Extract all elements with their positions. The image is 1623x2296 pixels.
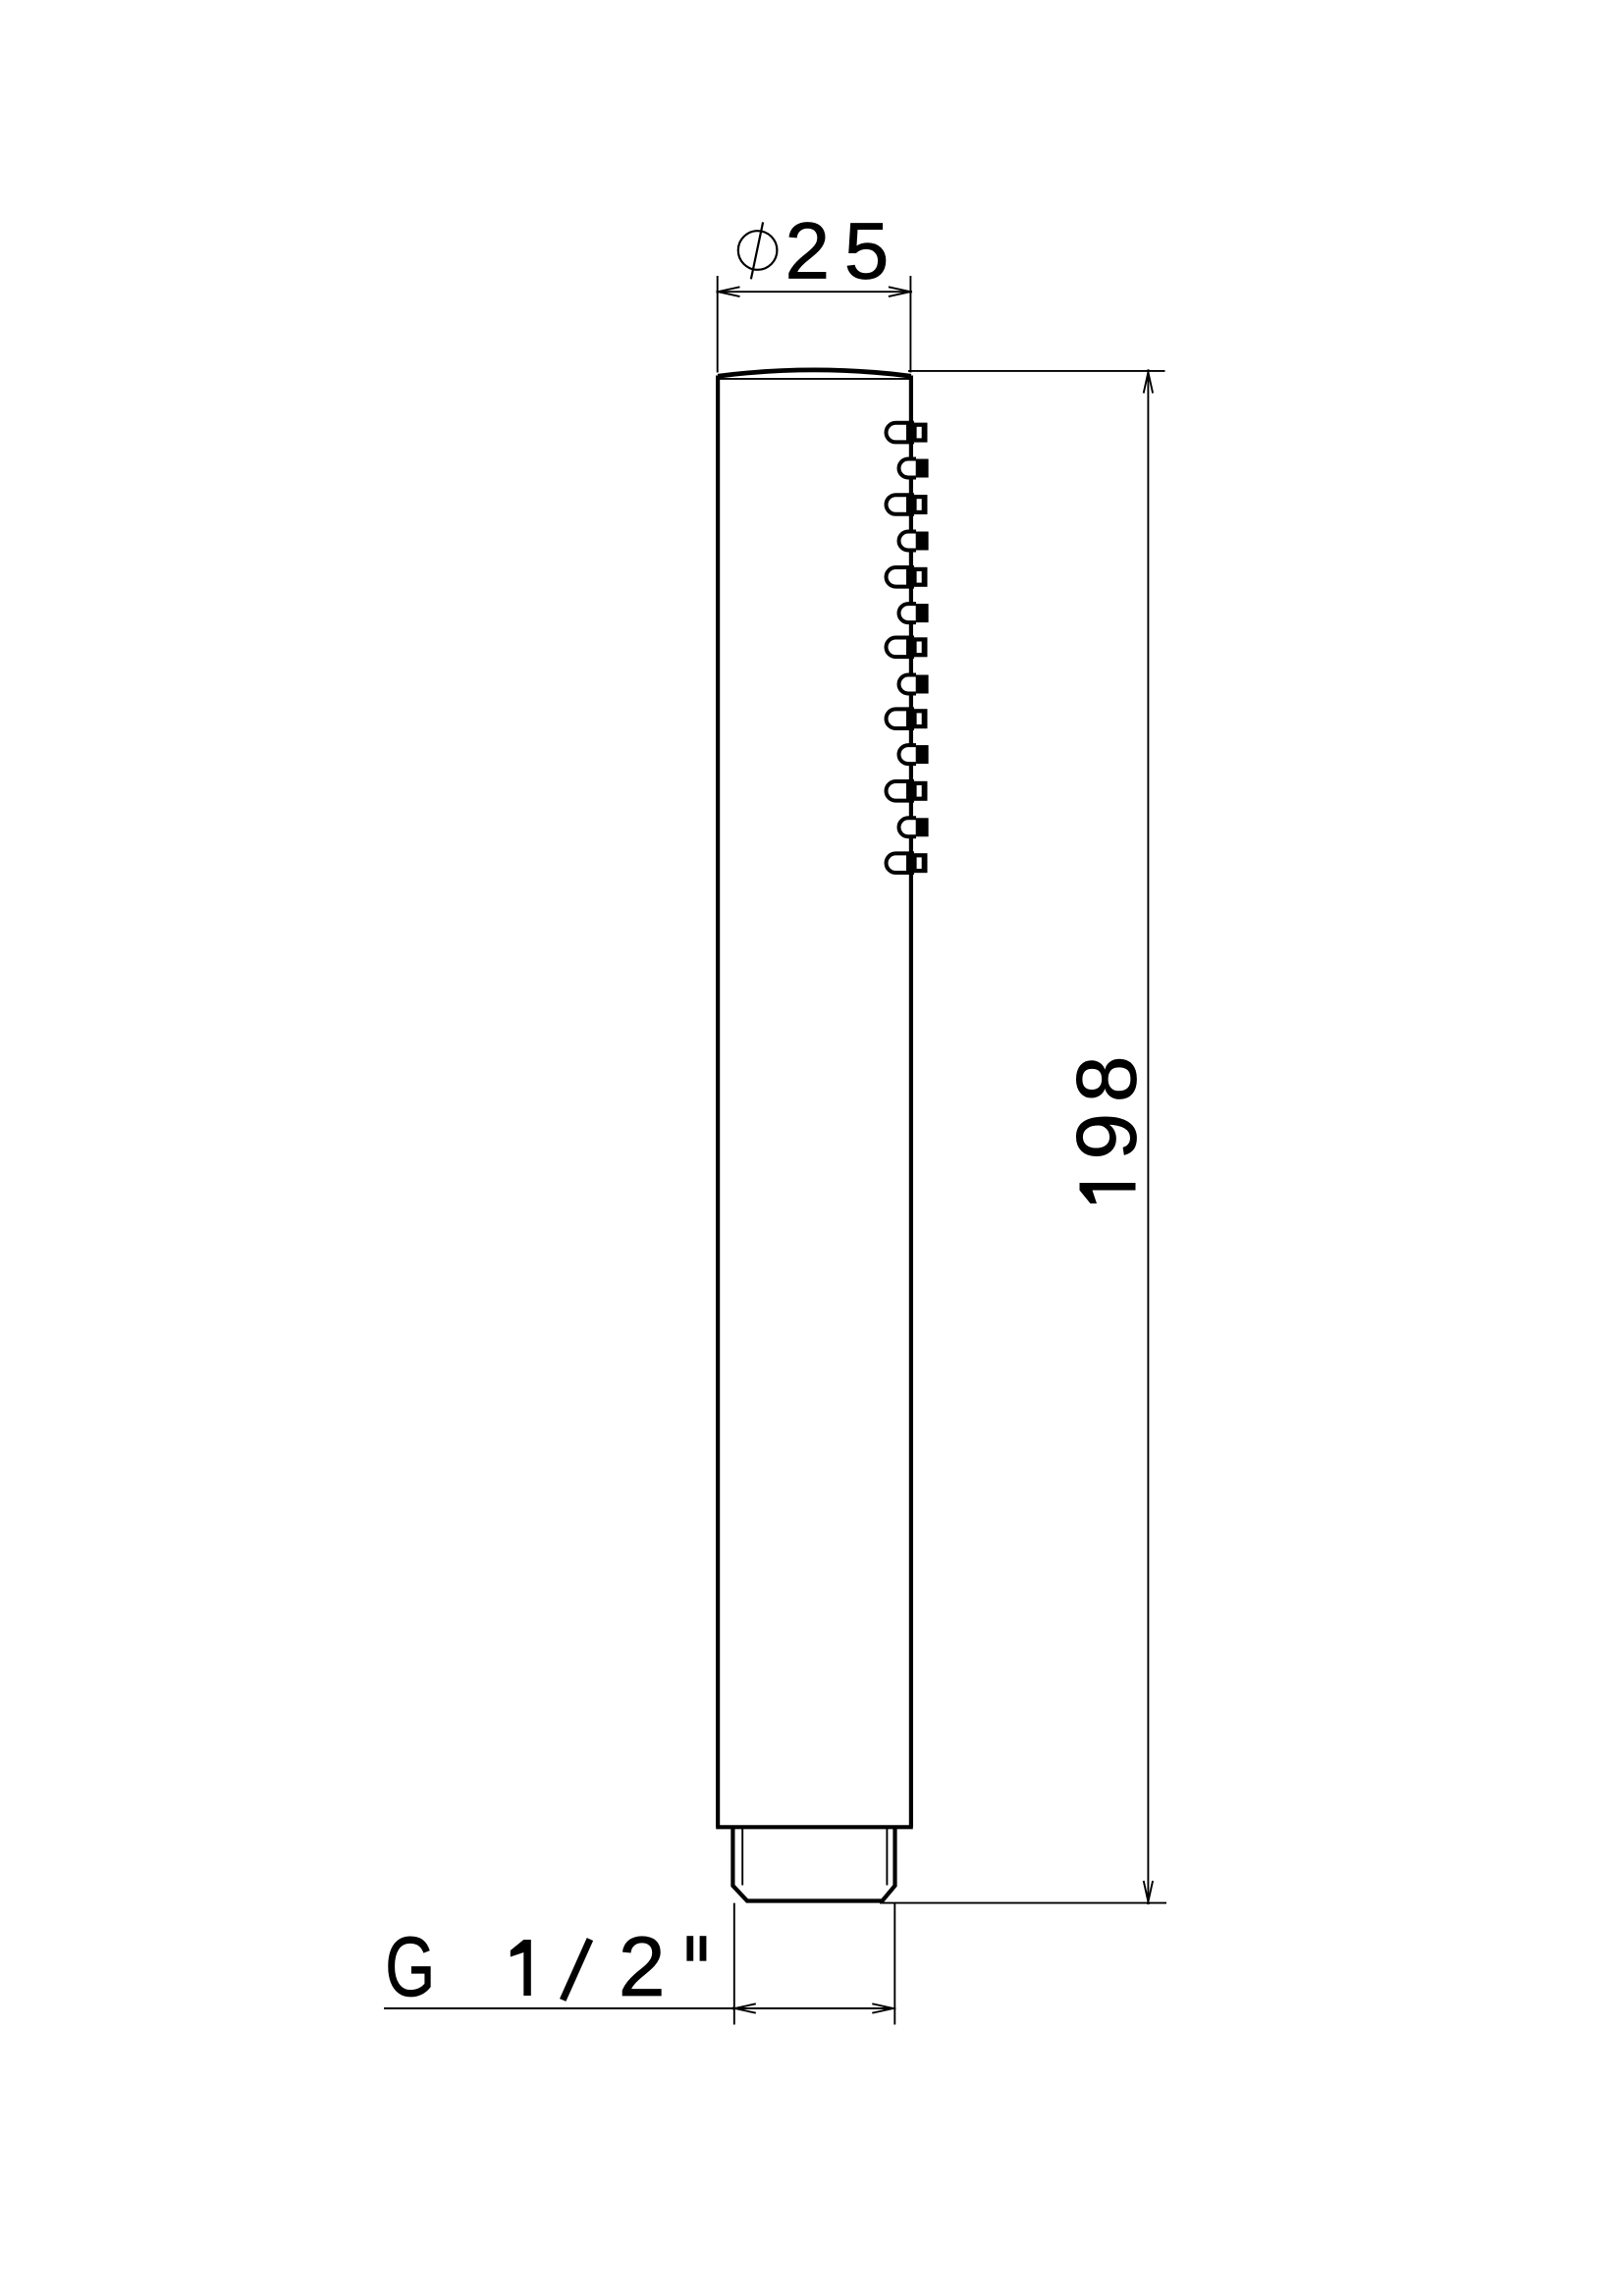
- svg-text:G: G: [385, 1920, 435, 2014]
- svg-text:2: 2: [619, 1920, 666, 2014]
